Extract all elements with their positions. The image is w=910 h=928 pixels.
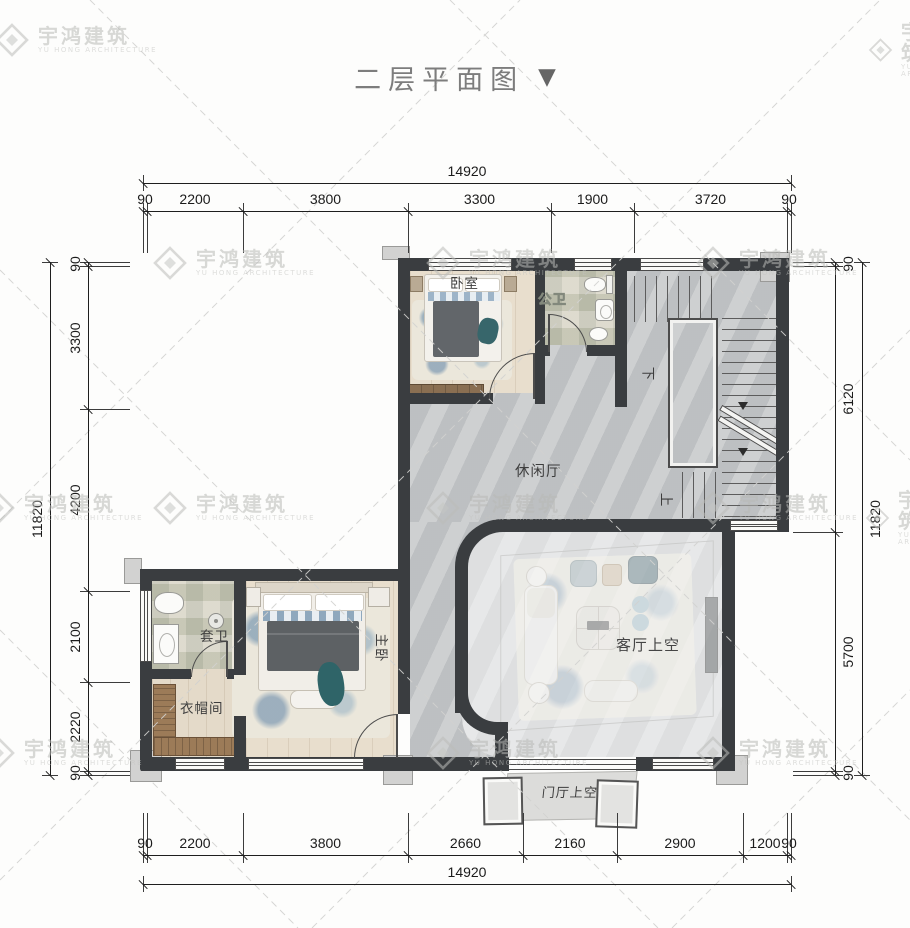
stair-landing-rail <box>668 318 718 468</box>
dim-bottom-segments-label: 2660 <box>450 835 481 851</box>
cloakroom-label: 衣帽间 <box>180 697 224 717</box>
dim-left-total-label: 11820 <box>29 500 45 538</box>
wall-corridor-left <box>398 258 410 714</box>
watermark: 宇鸿建筑 YU HONG ARCHITECTURE <box>152 490 315 526</box>
stair-down-label: 下 <box>639 367 659 382</box>
dim-top-total-label: 14920 <box>448 163 487 179</box>
dim-right-total-line <box>862 262 863 775</box>
dim-top-total-line <box>143 183 791 184</box>
window-bottom-master <box>248 758 364 770</box>
stair-flight-bottom <box>682 472 722 518</box>
stair-direction-arrow-2 <box>738 448 748 456</box>
wall-suite-vertical-b <box>234 716 246 757</box>
watermark-cn: 宇鸿建筑 <box>196 249 315 270</box>
dim-bottom-segments-label: 90 <box>781 835 797 851</box>
watermark-logo-icon <box>0 22 30 58</box>
dim-left-segments-label: 90 <box>67 256 83 272</box>
watermark-logo-icon <box>152 245 188 281</box>
wall-pubbath-bottom-b <box>587 345 627 356</box>
floorplan-canvas: 二层平面图 ▼ 下 上 卧室 公卫 休闲厅 <box>0 0 910 928</box>
window-left-ensuite <box>140 590 152 662</box>
dim-right-segments-label: 90 <box>840 765 856 781</box>
dim-top-segments-label: 90 <box>137 191 153 207</box>
dim-top-segments-label: 3720 <box>695 191 726 207</box>
page-title: 二层平面图 <box>354 58 524 97</box>
dim-top-segments-label: 3800 <box>310 191 341 207</box>
ensuite-vanity <box>153 624 179 664</box>
wall-bedroom-bottom <box>398 393 493 404</box>
dim-left-total-line <box>50 262 51 775</box>
watermark-cn: 宇鸿建筑 <box>898 490 910 532</box>
wall-stair-left <box>615 258 627 407</box>
master-bedroom-label: 主卧 <box>373 634 393 663</box>
wall-void-curved-top-left <box>455 519 735 713</box>
window-bottom-right <box>652 758 714 770</box>
dim-bottom-segments-label: 2160 <box>554 835 585 851</box>
public-bath-label: 公卫 <box>538 288 567 308</box>
dim-left-segments-label: 2100 <box>67 621 83 652</box>
watermark: 宇鸿建筑 YU HONG ARCHITECTURE <box>152 245 315 281</box>
bedroom-nightstand-left <box>410 276 423 292</box>
dim-top-segments-label: 2200 <box>179 191 210 207</box>
watermark-en: YU HONG ARCHITECTURE <box>196 515 315 522</box>
dim-right-segments-label: 5700 <box>840 636 856 667</box>
dim-right-segments-label: 90 <box>840 256 856 272</box>
dim-bottom-total-label: 14920 <box>448 864 487 880</box>
public-bath-toilet-tank <box>606 275 613 294</box>
title-dropdown-icon[interactable]: ▼ <box>538 66 556 89</box>
public-bath-sink <box>595 299 614 321</box>
leisure-hall-label: 休闲厅 <box>515 460 562 481</box>
page-title-row: 二层平面图 ▼ <box>0 58 910 97</box>
dim-bottom-segments-line <box>143 855 791 856</box>
living-void-label: 客厅上空 <box>616 634 680 655</box>
ensuite-door-leaf <box>226 641 228 677</box>
wall-suite-horizontal-b <box>227 669 234 679</box>
dim-right-segments-line <box>835 262 836 775</box>
wall-suite-vertical-a <box>234 581 246 675</box>
public-bath-toilet <box>584 277 606 292</box>
dim-left-segments-label: 4200 <box>67 484 83 515</box>
dim-bottom-total-line <box>143 884 791 885</box>
dim-right-segments-label: 6120 <box>840 383 856 414</box>
foyer-railing <box>509 759 636 770</box>
master-door-leaf <box>396 714 398 758</box>
wall-bedroom-right <box>535 258 545 404</box>
master-nightstand-left <box>246 587 261 607</box>
bedroom-label: 卧室 <box>450 272 479 292</box>
ensuite-toilet <box>154 592 184 614</box>
dim-bottom-segments-label: 3800 <box>310 835 341 851</box>
dim-left-segments-label: 3300 <box>67 322 83 353</box>
watermark-logo-icon <box>0 490 16 526</box>
window-bottom-cloakroom <box>175 758 225 770</box>
foyer-void-label: 门厅上空 <box>541 782 599 801</box>
watermark: 宇鸿建筑 YU HONG ARCHITECTURE <box>0 22 157 58</box>
watermark-cn: 宇鸿建筑 <box>196 494 315 515</box>
porch-column-left <box>483 777 524 826</box>
public-bath-door-leaf <box>548 314 550 352</box>
watermark-en: YU HONG ARCHITECTURE <box>196 270 315 277</box>
wall-void-bottom-stub <box>495 729 508 771</box>
bedroom-nightstand-right <box>504 276 517 292</box>
watermark-logo-icon <box>152 490 188 526</box>
cloakroom-wardrobe-bottom <box>153 737 239 756</box>
stair-flight-top <box>634 276 718 322</box>
wall-master-top <box>140 569 410 581</box>
wall-suite-horizontal-a <box>152 669 191 679</box>
watermark-logo-icon <box>0 735 16 771</box>
watermark-cn: 宇鸿建筑 <box>739 739 858 760</box>
dim-top-segments-label: 1900 <box>577 191 608 207</box>
dim-left-segments-label: 90 <box>67 765 83 781</box>
dim-top-segments-line <box>143 211 791 212</box>
dim-top-segments-label: 3300 <box>464 191 495 207</box>
window-top-stair <box>640 258 704 271</box>
watermark-en: YU HONG ARCHITECTURE <box>898 532 910 547</box>
wall-right-upper <box>776 258 789 532</box>
bedroom-door-leaf <box>533 353 535 399</box>
dim-bottom-segments-label: 90 <box>137 835 153 851</box>
master-bed <box>258 583 366 691</box>
window-top-bedroom <box>428 258 512 271</box>
window-top-publicbath <box>574 258 612 271</box>
dim-right-total-label: 11820 <box>867 500 883 538</box>
stair-direction-arrow-1 <box>738 402 748 410</box>
dim-left-segments-label: 2220 <box>67 711 83 742</box>
watermark-cn: 宇鸿建筑 <box>24 739 143 760</box>
window-step-right <box>730 520 778 531</box>
stair-up-label: 上 <box>657 493 677 508</box>
dim-bottom-segments-label: 1200 <box>749 835 780 851</box>
ensuite-bath-label: 套卫 <box>200 625 229 645</box>
dim-left-segments-line <box>88 262 89 775</box>
dim-top-segments-label: 90 <box>781 191 797 207</box>
dim-bottom-segments-label: 2200 <box>179 835 210 851</box>
master-nightstand-right <box>368 587 390 607</box>
watermark-cn: 宇鸿建筑 <box>38 26 157 47</box>
public-bath-bidet <box>589 327 608 341</box>
dim-bottom-segments-label: 2900 <box>664 835 695 851</box>
watermark-en: YU HONG ARCHITECTURE <box>38 47 157 54</box>
